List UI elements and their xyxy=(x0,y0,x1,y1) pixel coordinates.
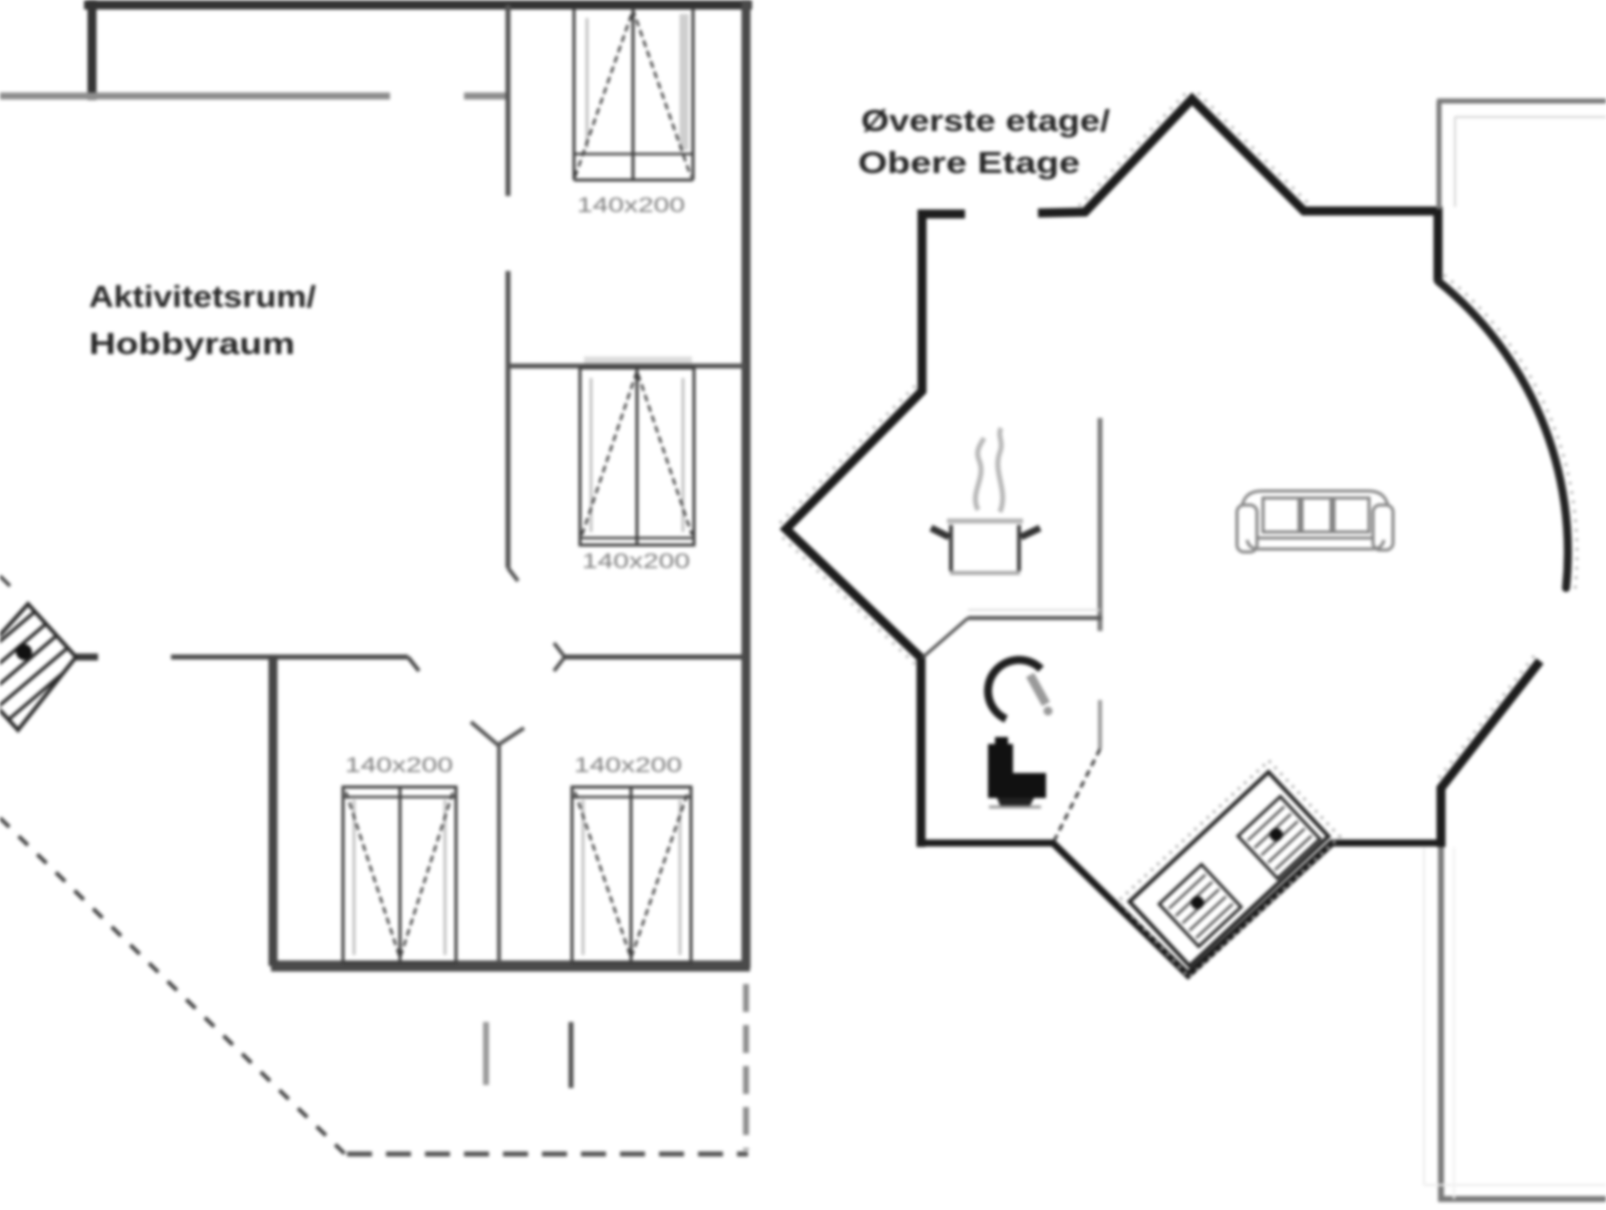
svg-text:140x200: 140x200 xyxy=(345,753,453,777)
svg-text:140x200: 140x200 xyxy=(574,753,682,777)
svg-text:Øverste etage/: Øverste etage/ xyxy=(861,103,1110,138)
svg-text:Hobbyraum: Hobbyraum xyxy=(89,326,295,361)
svg-text:Obere Etage: Obere Etage xyxy=(858,145,1080,180)
svg-text:Aktivitetsrum/: Aktivitetsrum/ xyxy=(89,279,316,314)
svg-text:140x200: 140x200 xyxy=(582,549,690,573)
svg-text:140x200: 140x200 xyxy=(577,193,685,217)
